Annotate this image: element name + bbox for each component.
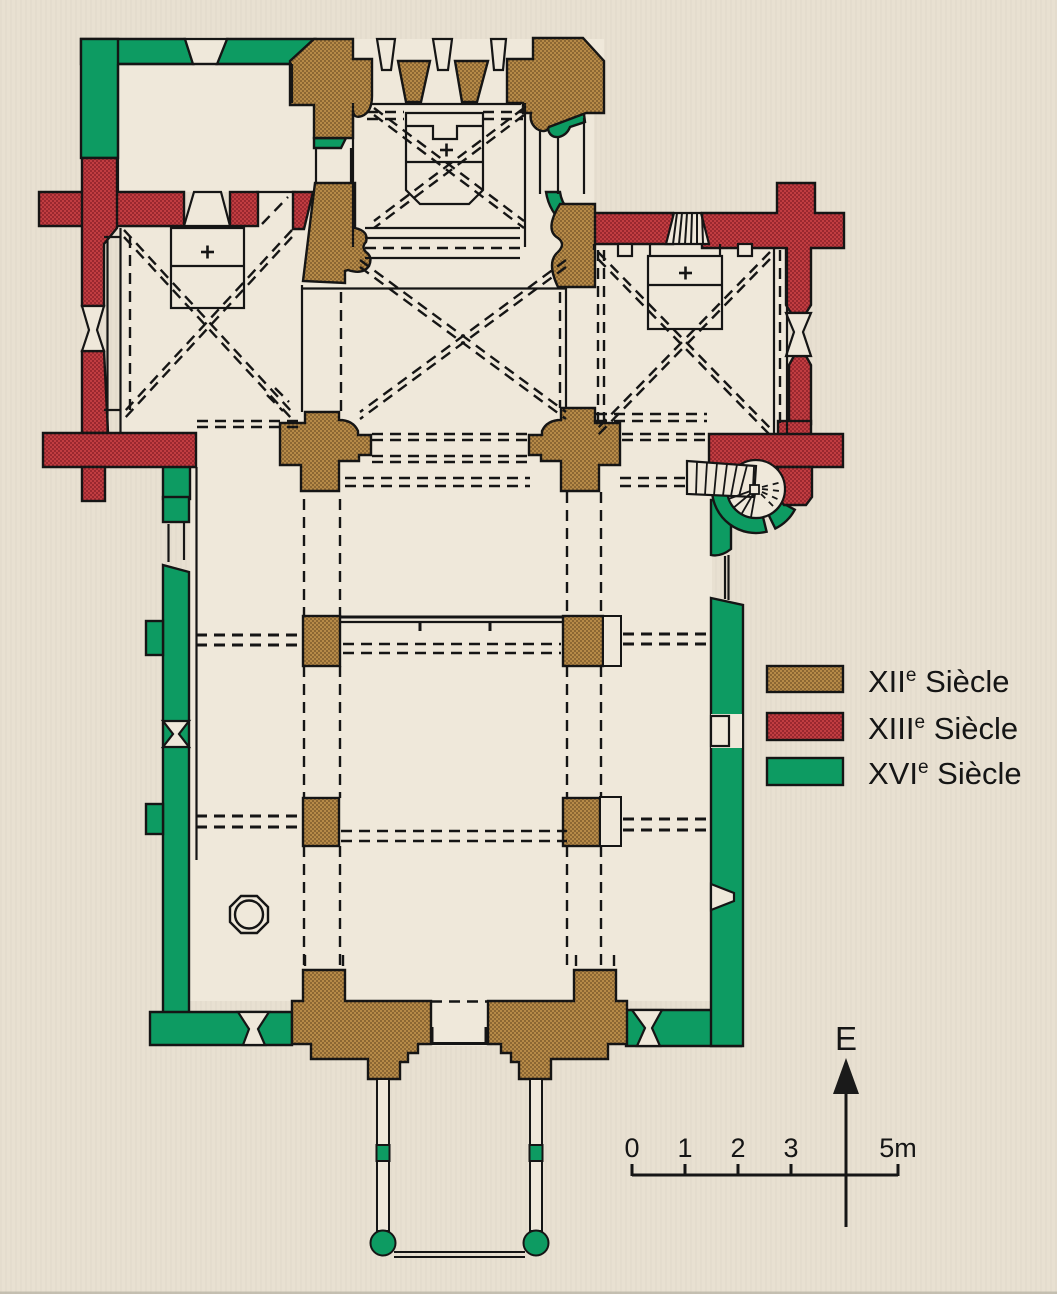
svg-text:2: 2 bbox=[730, 1133, 745, 1163]
svg-text:1: 1 bbox=[677, 1133, 692, 1163]
svg-text:5m: 5m bbox=[879, 1133, 917, 1163]
svg-text:0: 0 bbox=[624, 1133, 639, 1163]
svg-text:XVIe Siècle: XVIe Siècle bbox=[868, 756, 1022, 791]
svg-text:XIIe Siècle: XIIe Siècle bbox=[868, 664, 1010, 699]
svg-text:3: 3 bbox=[783, 1133, 798, 1163]
svg-text:XIIIe Siècle: XIIIe Siècle bbox=[868, 711, 1018, 746]
svg-text:E: E bbox=[835, 1020, 857, 1057]
